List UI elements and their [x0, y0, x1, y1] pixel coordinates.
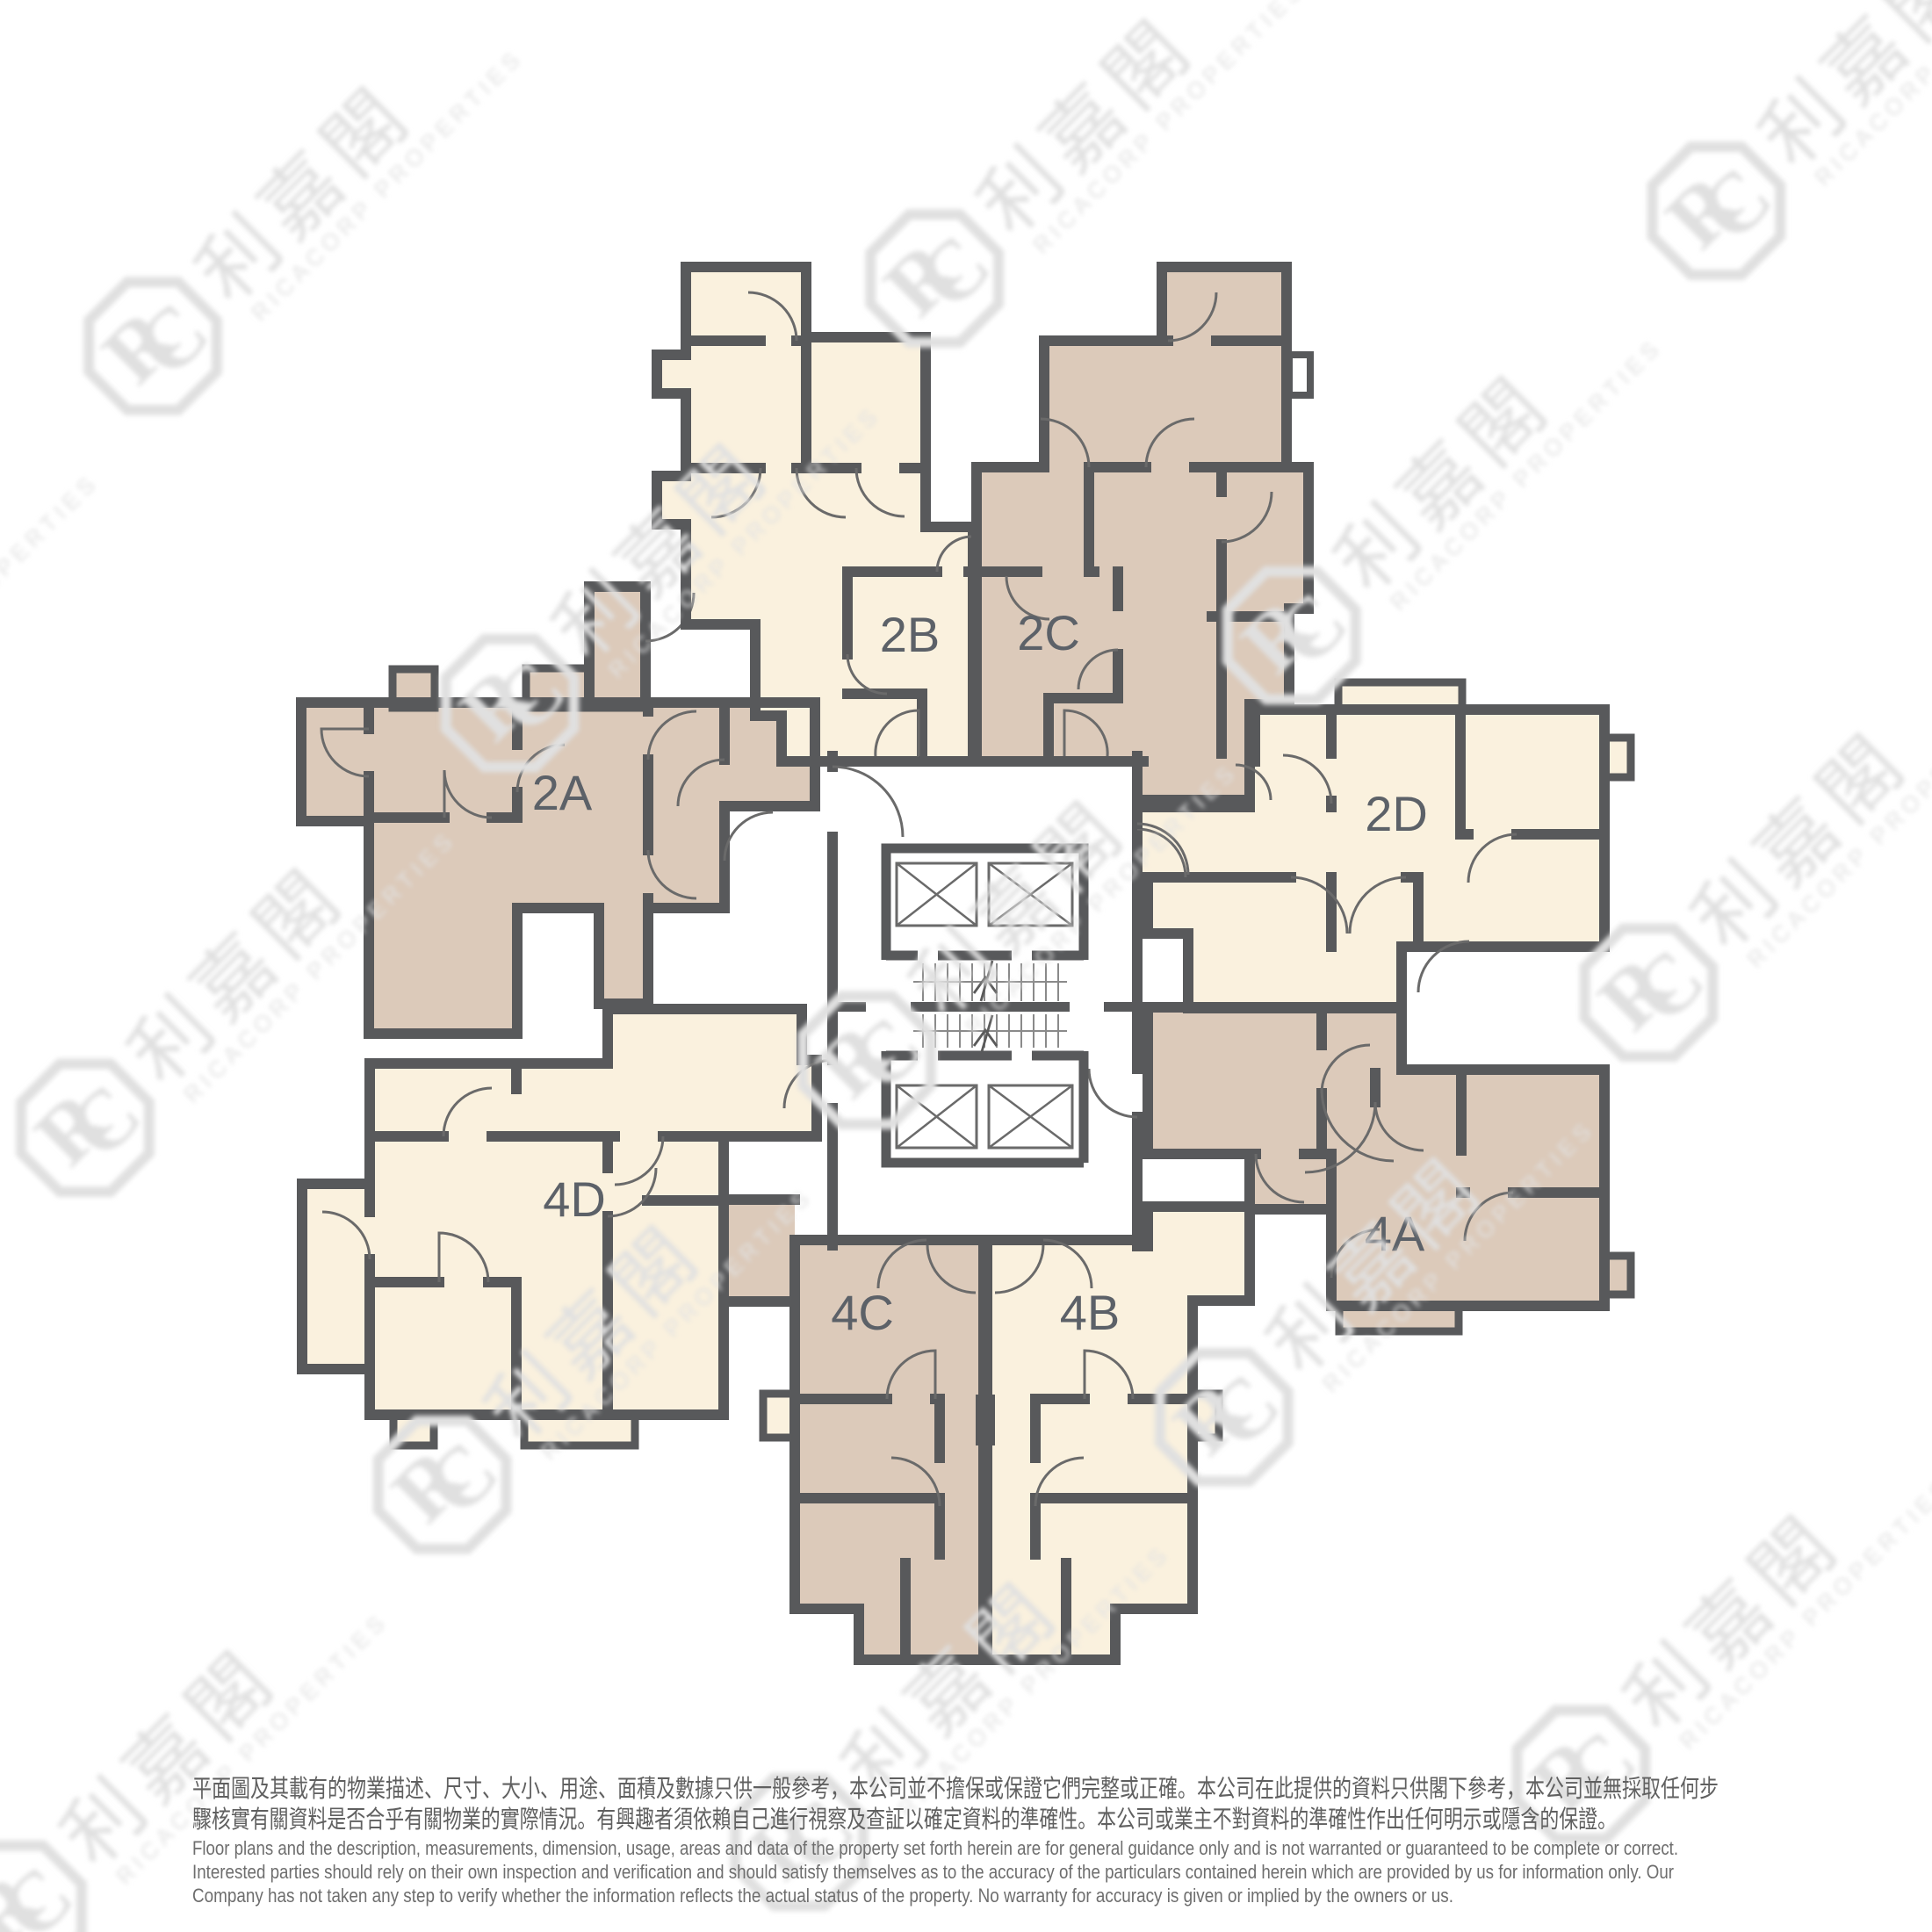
svg-text:2B: 2B	[880, 607, 941, 662]
svg-text:Company has not taken any step: Company has not taken any step to verify…	[192, 1885, 1453, 1907]
svg-text:2C: 2C	[1017, 605, 1080, 660]
svg-text:2D: 2D	[1365, 786, 1428, 841]
svg-text:4D: 4D	[543, 1171, 606, 1227]
svg-text:4B: 4B	[1060, 1285, 1121, 1340]
svg-text:Floor plans and the descriptio: Floor plans and the description, measure…	[192, 1837, 1678, 1859]
svg-text:2A: 2A	[532, 765, 593, 820]
svg-text:平面圖及其載有的物業描述、尺寸、大小、用途、面積及數據只供一: 平面圖及其載有的物業描述、尺寸、大小、用途、面積及數據只供一般參考，本公司並不擔…	[192, 1775, 1719, 1802]
svg-text:Interested parties should rely: Interested parties should rely on their …	[192, 1861, 1674, 1883]
svg-text:驟核實有關資料是否合乎有關物業的實際情況。有興趣者須依賴自己: 驟核實有關資料是否合乎有關物業的實際情況。有興趣者須依賴自己進行視察及查証以確定…	[192, 1806, 1617, 1833]
svg-text:4C: 4C	[831, 1285, 894, 1340]
